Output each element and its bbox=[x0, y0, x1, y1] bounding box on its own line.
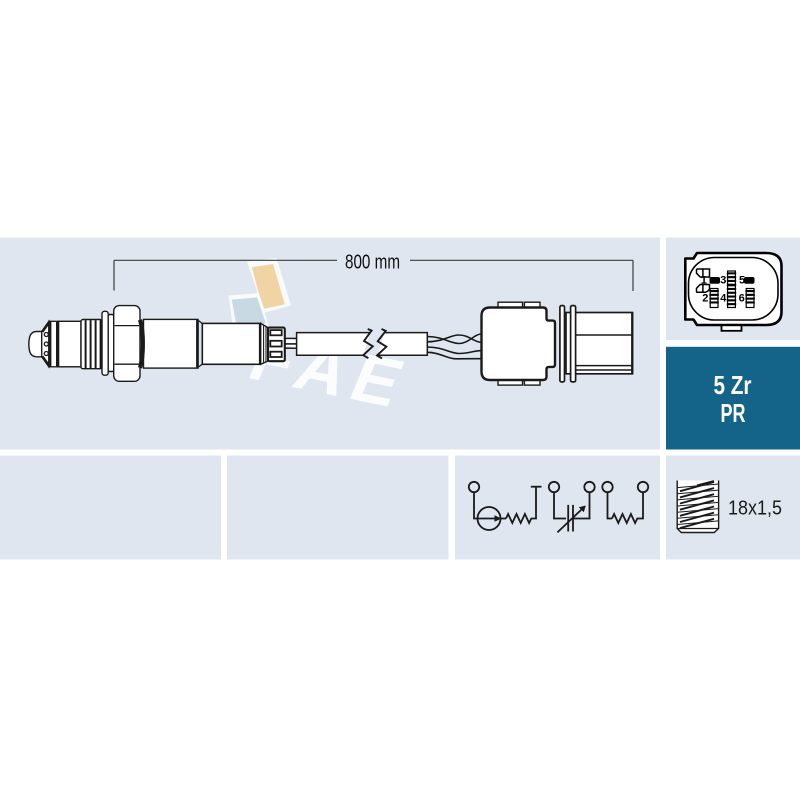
svg-text:800 mm: 800 mm bbox=[345, 251, 400, 273]
svg-text:2: 2 bbox=[702, 292, 708, 304]
svg-text:18x1,5: 18x1,5 bbox=[728, 498, 782, 520]
svg-text:5 Zr: 5 Zr bbox=[714, 370, 752, 400]
svg-text:5: 5 bbox=[739, 275, 745, 287]
svg-text:4: 4 bbox=[720, 292, 727, 304]
svg-text:6: 6 bbox=[739, 292, 745, 304]
svg-text:3: 3 bbox=[720, 275, 726, 287]
svg-text:PR: PR bbox=[721, 398, 746, 428]
svg-text:1: 1 bbox=[701, 275, 707, 287]
